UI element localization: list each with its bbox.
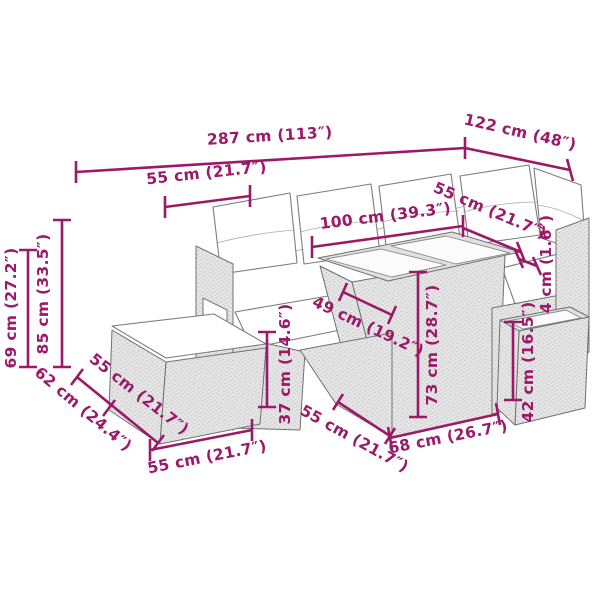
side-table-left-side [497,320,519,425]
dim-label: 85 cm (33.5″) [34,234,52,355]
dim-label: 4 cm (1.6″) [537,215,555,314]
dim-label: 37 cm (14.6″) [276,304,294,425]
dim-overall-width: 287 cm (113″) [76,123,465,183]
dim-label: 55 cm (21.7″) [145,158,267,189]
dim-arm-height: 69 cm (27.2″) [2,248,37,369]
product-dimension-diagram-page: 287 cm (113″) 122 cm (48″) 55 cm (21.7″)… [0,0,600,600]
dim-label: 287 cm (113″) [206,123,333,149]
dim-label: 69 cm (27.2″) [2,248,20,369]
dim-label: 73 cm (28.7″) [423,285,441,406]
dim-total-height: 85 cm (33.5″) [34,220,71,367]
dim-tick [71,369,83,385]
dim-line [76,148,465,172]
dim-label: 42 cm (16.5″) [519,302,537,423]
furniture-dimension-diagram: 287 cm (113″) 122 cm (48″) 55 cm (21.7″)… [0,0,600,600]
rattan-sofa-set-illustration [109,165,589,444]
dim-label: 122 cm (48″) [462,110,578,153]
